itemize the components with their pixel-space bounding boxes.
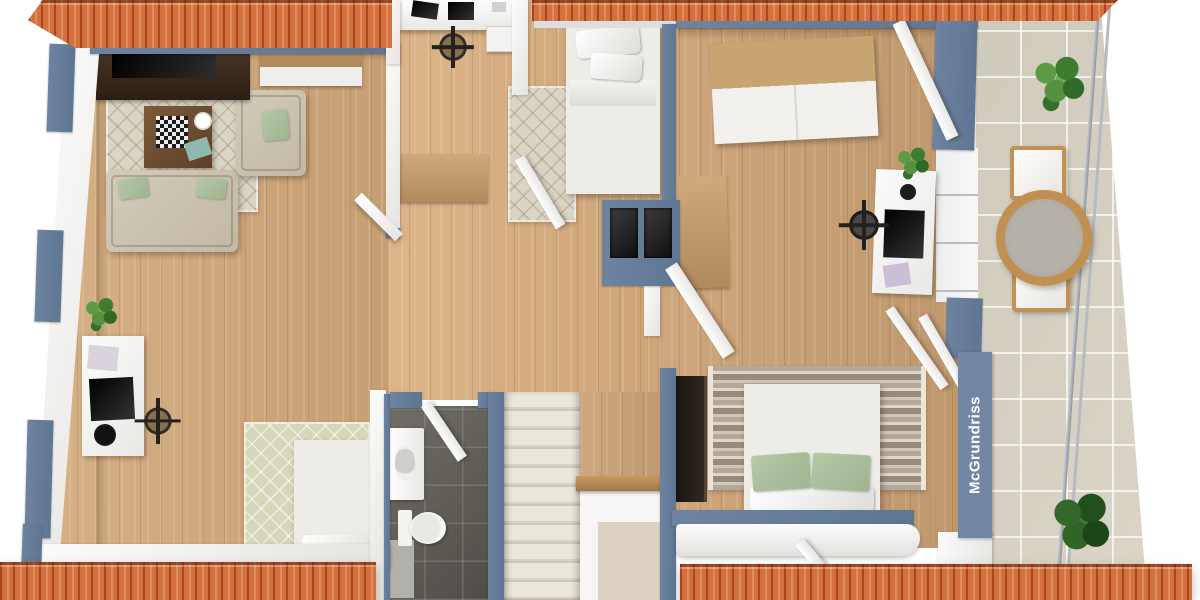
roof-bottom-left xyxy=(0,562,376,600)
monitor xyxy=(883,209,925,258)
wall-bathroom-left-edge xyxy=(384,394,390,600)
chimney-flue xyxy=(610,208,638,258)
wall-living-hall xyxy=(386,42,400,232)
toilet-bowl xyxy=(410,512,446,544)
floor-plant xyxy=(80,294,122,334)
green-pillow xyxy=(261,109,290,141)
desk-object xyxy=(900,184,916,200)
exterior-wall-right xyxy=(945,298,983,359)
balcony-round-table xyxy=(996,190,1092,286)
exterior-wall-left-segment xyxy=(24,420,53,539)
chimney-flue xyxy=(644,208,672,258)
potted-plant xyxy=(892,144,934,182)
staircase xyxy=(504,392,580,600)
exterior-wall-left-segment xyxy=(34,230,63,323)
papers xyxy=(883,262,912,287)
lower-floor-patch xyxy=(598,522,664,600)
green-pillow xyxy=(195,176,227,199)
double-bed xyxy=(744,384,880,518)
balcony-window xyxy=(936,148,978,302)
dormer-curved-wall xyxy=(676,524,920,556)
hall-dresser xyxy=(388,154,488,202)
floorplan-canvas: McGrundriss xyxy=(0,0,1200,600)
roof-bottom-right xyxy=(680,564,1192,600)
balcony-plant-bottom xyxy=(1044,484,1118,564)
folded-blanket xyxy=(570,80,656,106)
green-pillow xyxy=(117,176,149,200)
wall-bedroom-right-left xyxy=(662,24,676,202)
decor-plate xyxy=(194,112,212,130)
monitor xyxy=(89,377,135,421)
exterior-wall-left-segment xyxy=(46,44,75,133)
wall-bathroom-top xyxy=(390,392,422,408)
wall-stairs-left xyxy=(488,392,504,600)
green-pillow xyxy=(811,453,871,492)
dormer-wall-right xyxy=(512,0,528,95)
office-chair xyxy=(842,200,886,250)
desk-object xyxy=(492,2,506,12)
monitor xyxy=(448,2,474,20)
watermark-text: McGrundriss xyxy=(967,396,984,494)
flatscreen-tv xyxy=(112,50,216,78)
bathroom-sink xyxy=(388,428,424,500)
office-chair xyxy=(430,26,476,68)
bed-duvet xyxy=(570,104,656,190)
wardrobe xyxy=(709,36,878,144)
green-pillow xyxy=(751,452,811,492)
watermark-strip: McGrundriss xyxy=(958,352,992,538)
single-bed-top xyxy=(566,24,660,194)
papers xyxy=(87,345,119,372)
wall-bedroom-bottom-left xyxy=(660,368,676,600)
roof-top-left xyxy=(28,0,392,48)
stair-railing xyxy=(576,476,666,491)
tv-panel xyxy=(676,376,707,502)
bed-pillow xyxy=(589,52,643,82)
office-chair xyxy=(138,398,178,444)
laptop xyxy=(411,0,439,19)
desk-object xyxy=(94,424,116,446)
balcony-plant-top xyxy=(1026,50,1092,116)
shower-area xyxy=(388,540,414,598)
wall-hall-piece xyxy=(644,286,660,336)
roof-top-right xyxy=(532,0,1118,21)
stairwell-floor xyxy=(580,392,664,480)
bed-duvet xyxy=(298,442,378,534)
